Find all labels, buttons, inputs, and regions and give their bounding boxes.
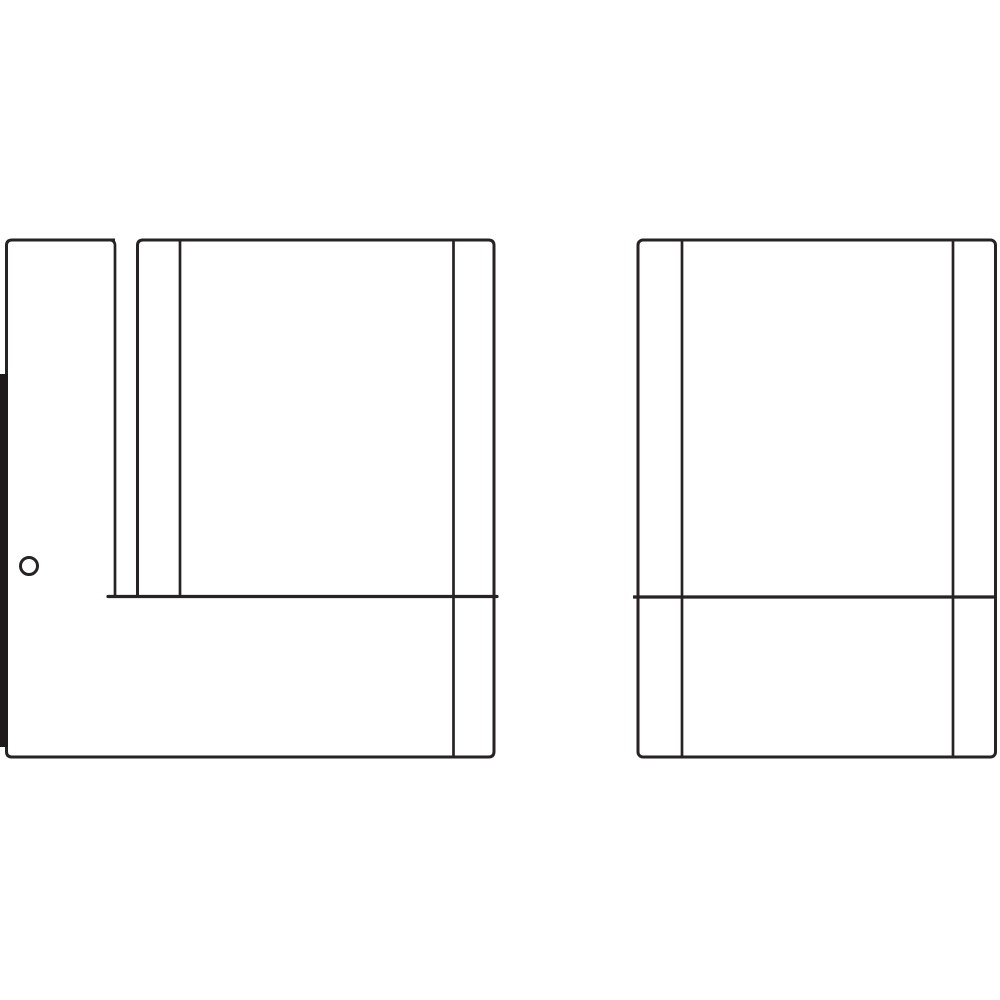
left-hinge-bar [0,374,8,747]
left-cabinet-outline [7,240,495,757]
cabinet-line-drawing [0,0,1000,1000]
left-door-edge [110,240,115,597]
right-cabinet-outline [638,240,996,757]
illustration-stage [0,0,1000,1000]
left-screw-hole [21,558,38,575]
